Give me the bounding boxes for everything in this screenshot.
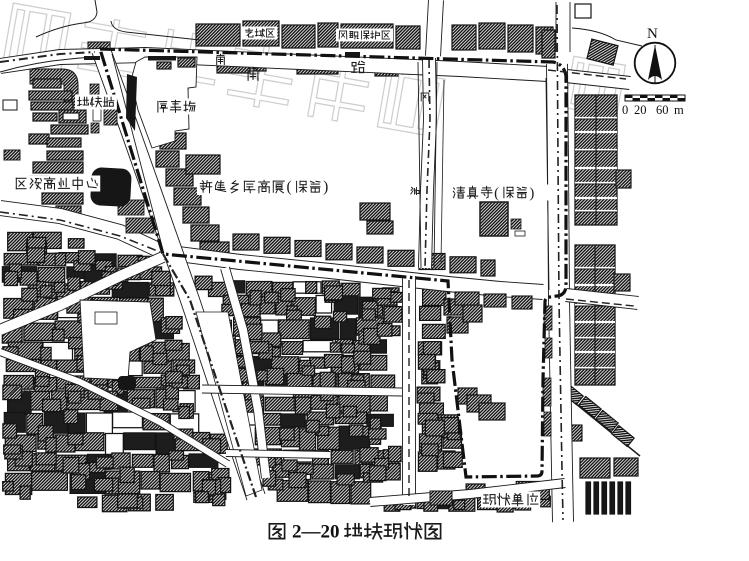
svg-text:20: 20 bbox=[634, 103, 647, 117]
svg-text:2—20: 2—20 bbox=[292, 522, 340, 543]
svg-text:(: ( bbox=[287, 179, 292, 196]
svg-text:N: N bbox=[647, 26, 658, 42]
svg-text:0: 0 bbox=[622, 103, 628, 117]
svg-text:(: ( bbox=[494, 185, 499, 201]
svg-text:): ) bbox=[529, 185, 534, 201]
svg-text:m: m bbox=[674, 103, 684, 117]
svg-text:60: 60 bbox=[656, 103, 669, 117]
svg-text:): ) bbox=[323, 179, 328, 196]
